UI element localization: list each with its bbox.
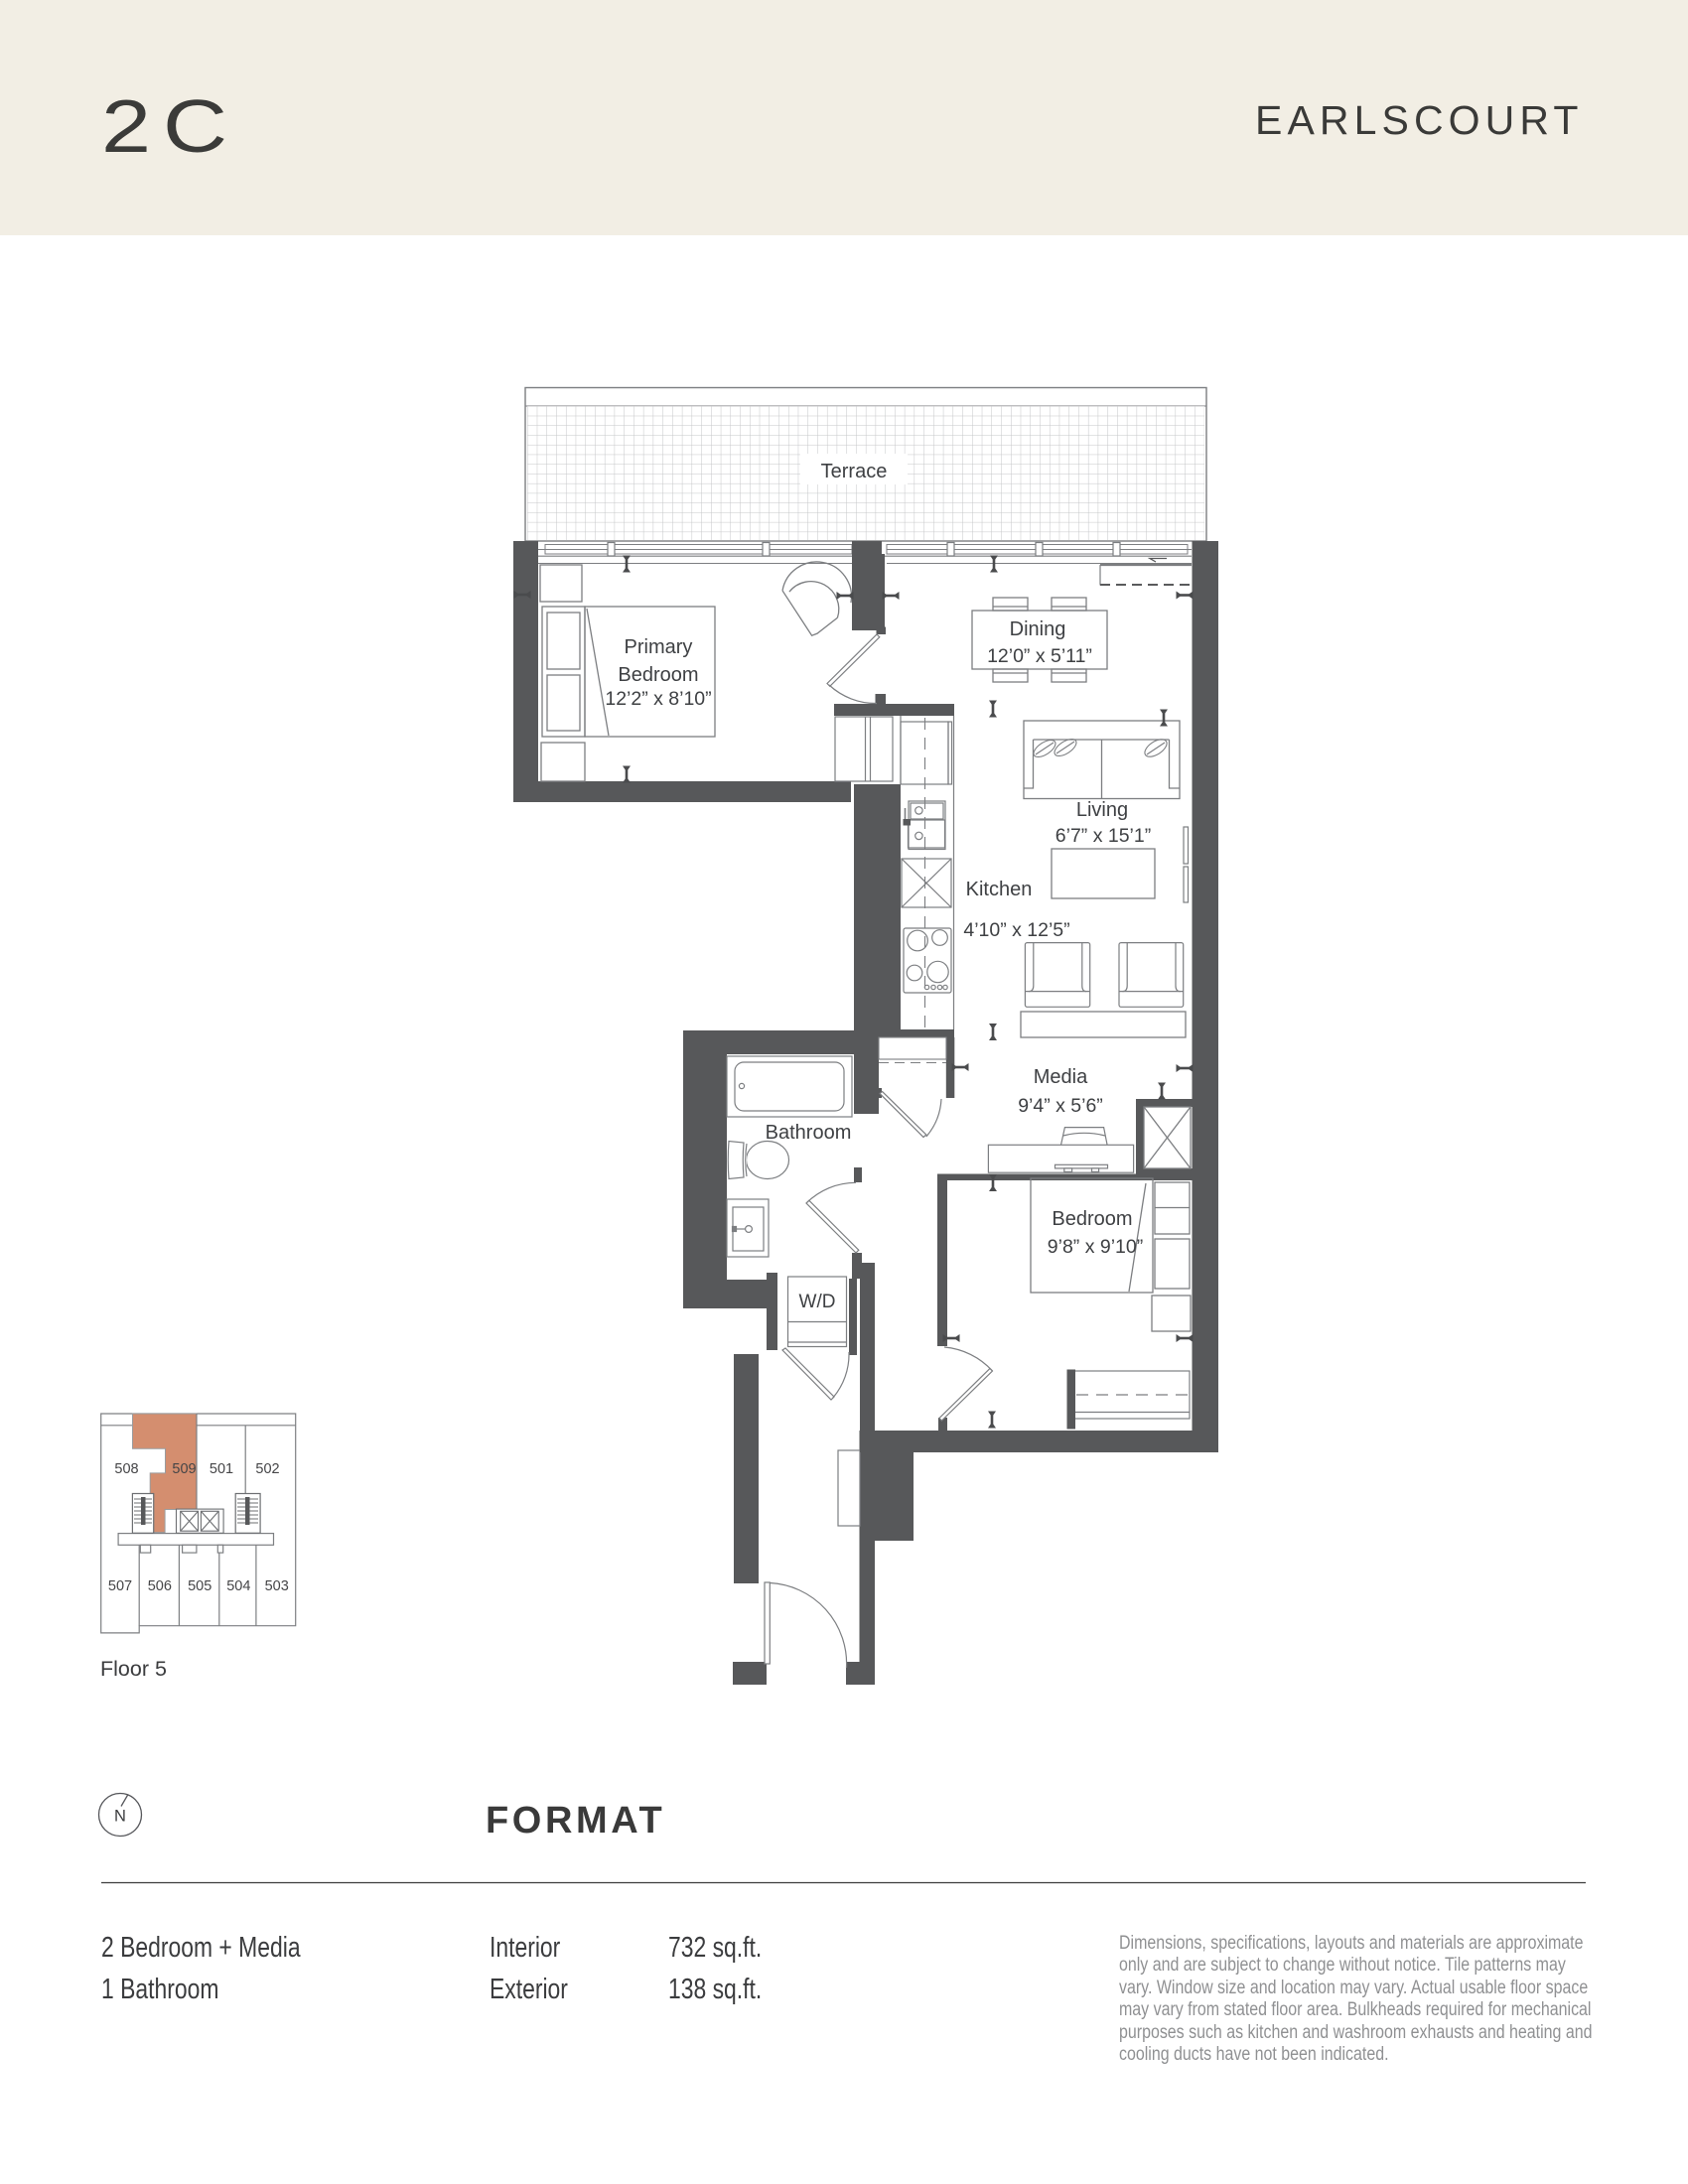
svg-text:505: 505 [188,1578,211,1594]
svg-text:N: N [114,1808,126,1826]
svg-text:Floor 5: Floor 5 [100,1657,167,1681]
svg-text:9’4” x 5’6”: 9’4” x 5’6” [1018,1095,1103,1117]
svg-text:508: 508 [114,1461,138,1477]
svg-text:Terrace: Terrace [821,461,888,482]
svg-text:Dining: Dining [1010,618,1066,640]
svg-text:12’0” x 5’11”: 12’0” x 5’11” [987,645,1092,667]
svg-text:6’7” x 15’1”: 6’7” x 15’1” [1055,825,1151,847]
svg-text:Primary: Primary [625,636,693,658]
svg-text:Living: Living [1076,799,1128,821]
svg-text:503: 503 [265,1578,289,1594]
svg-text:9’8” x 9’10”: 9’8” x 9’10” [1048,1236,1143,1258]
svg-text:12’2” x 8’10”: 12’2” x 8’10” [605,688,711,710]
svg-text:4’10” x 12’5”: 4’10” x 12’5” [963,919,1069,941]
svg-text:Bedroom: Bedroom [618,664,698,686]
svg-text:Bathroom: Bathroom [766,1122,852,1144]
svg-text:Kitchen: Kitchen [966,879,1033,900]
svg-text:506: 506 [148,1578,172,1594]
svg-text:507: 507 [108,1578,132,1594]
svg-text:W/D: W/D [799,1292,836,1312]
svg-text:502: 502 [255,1461,279,1477]
svg-text:501: 501 [210,1461,233,1477]
svg-text:509: 509 [172,1461,196,1477]
svg-text:FORMAT: FORMAT [486,1800,665,1842]
svg-text:504: 504 [226,1578,250,1594]
svg-text:Bedroom: Bedroom [1052,1208,1132,1230]
svg-text:Media: Media [1034,1066,1088,1088]
